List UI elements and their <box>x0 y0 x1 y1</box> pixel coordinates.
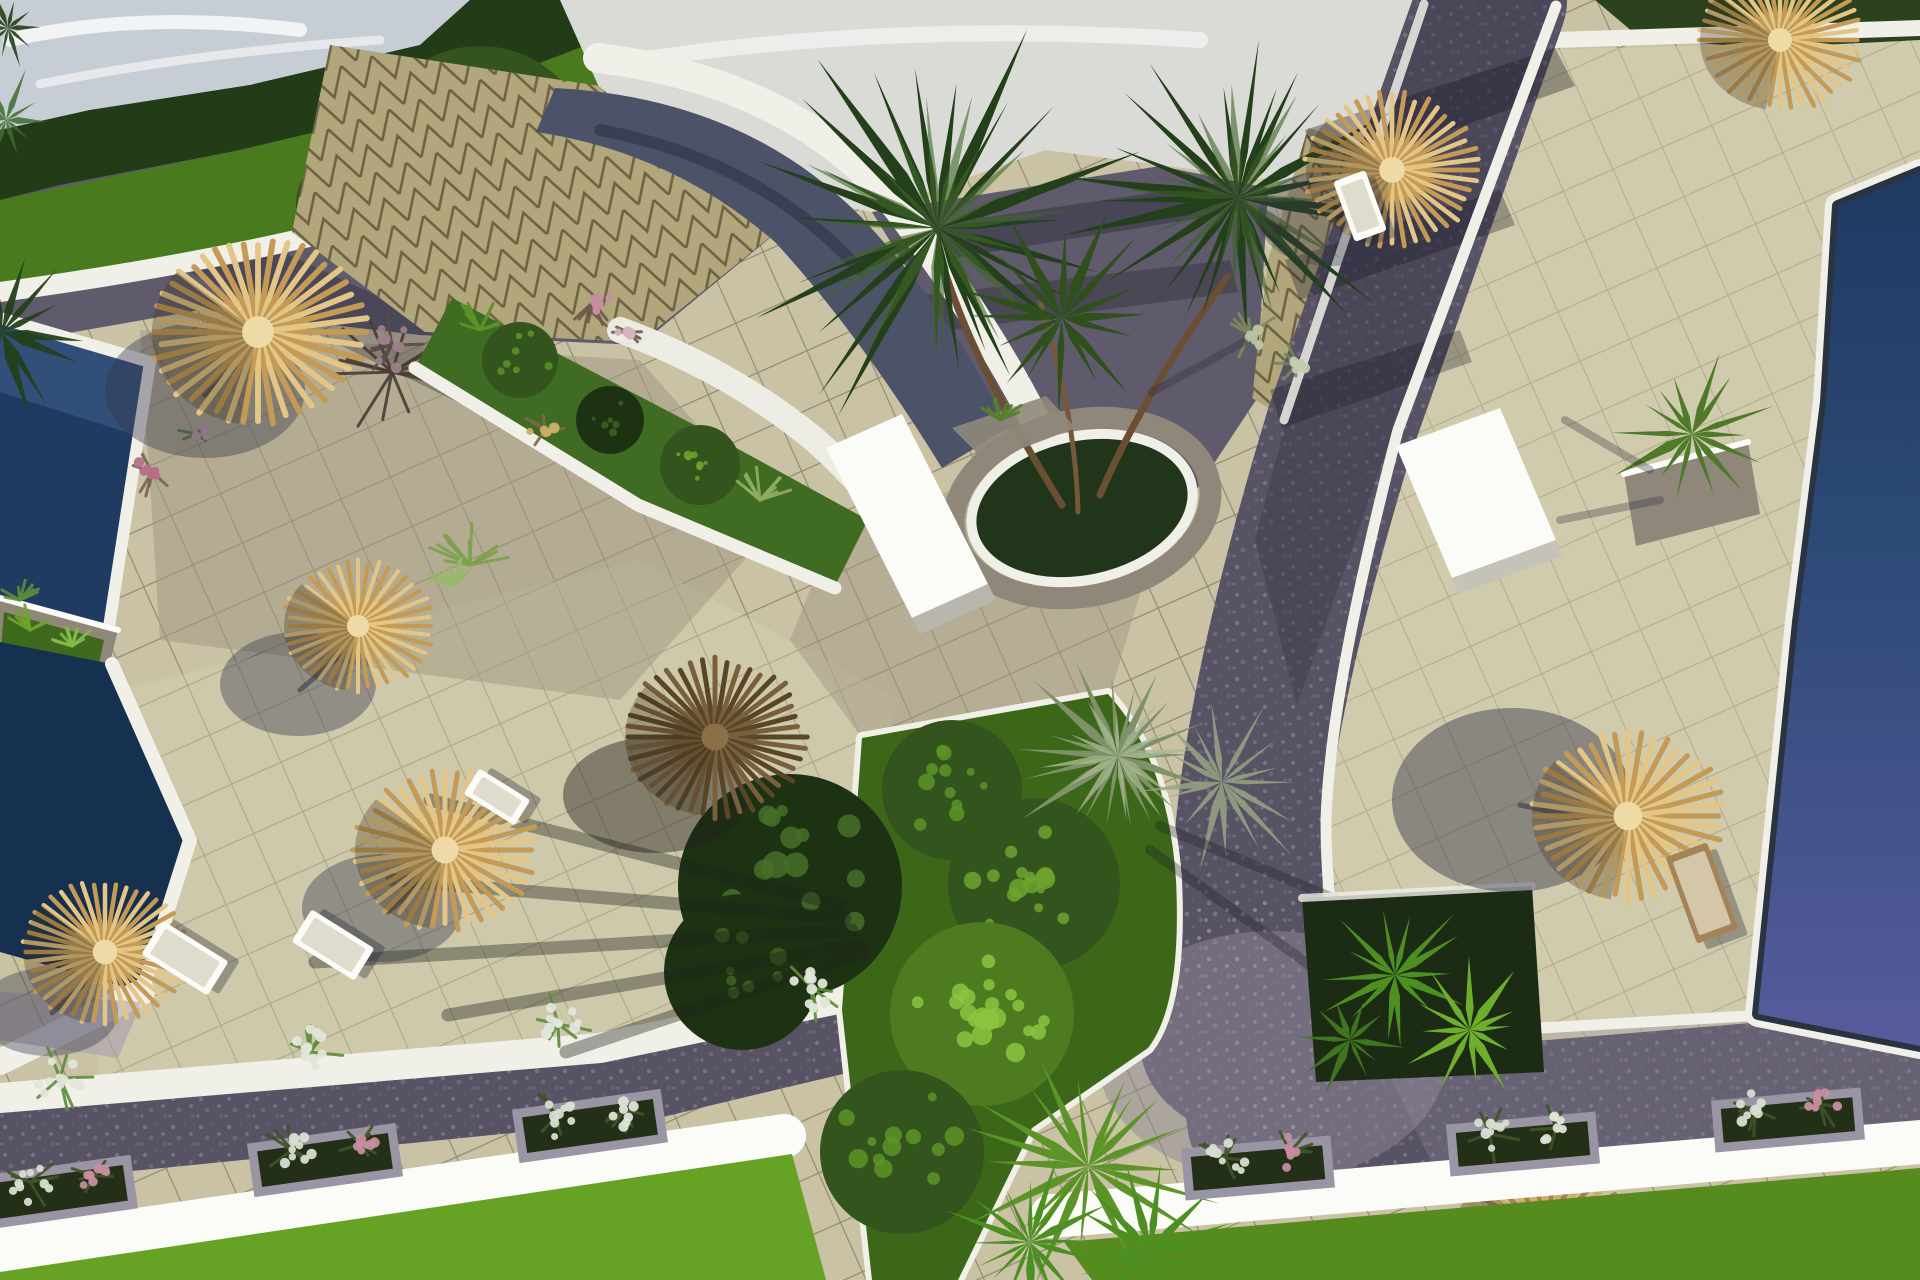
garden-strip-bush-3 <box>660 425 740 505</box>
central-lawn-bush-4 <box>820 1070 984 1234</box>
render-canvas <box>0 0 1920 1280</box>
garden-strip-bush-2 <box>576 386 644 454</box>
aerial-resort-rendering: Top-down 3D render of a resort developme… <box>0 0 1920 1280</box>
garden-strip-bush-1 <box>482 322 558 398</box>
